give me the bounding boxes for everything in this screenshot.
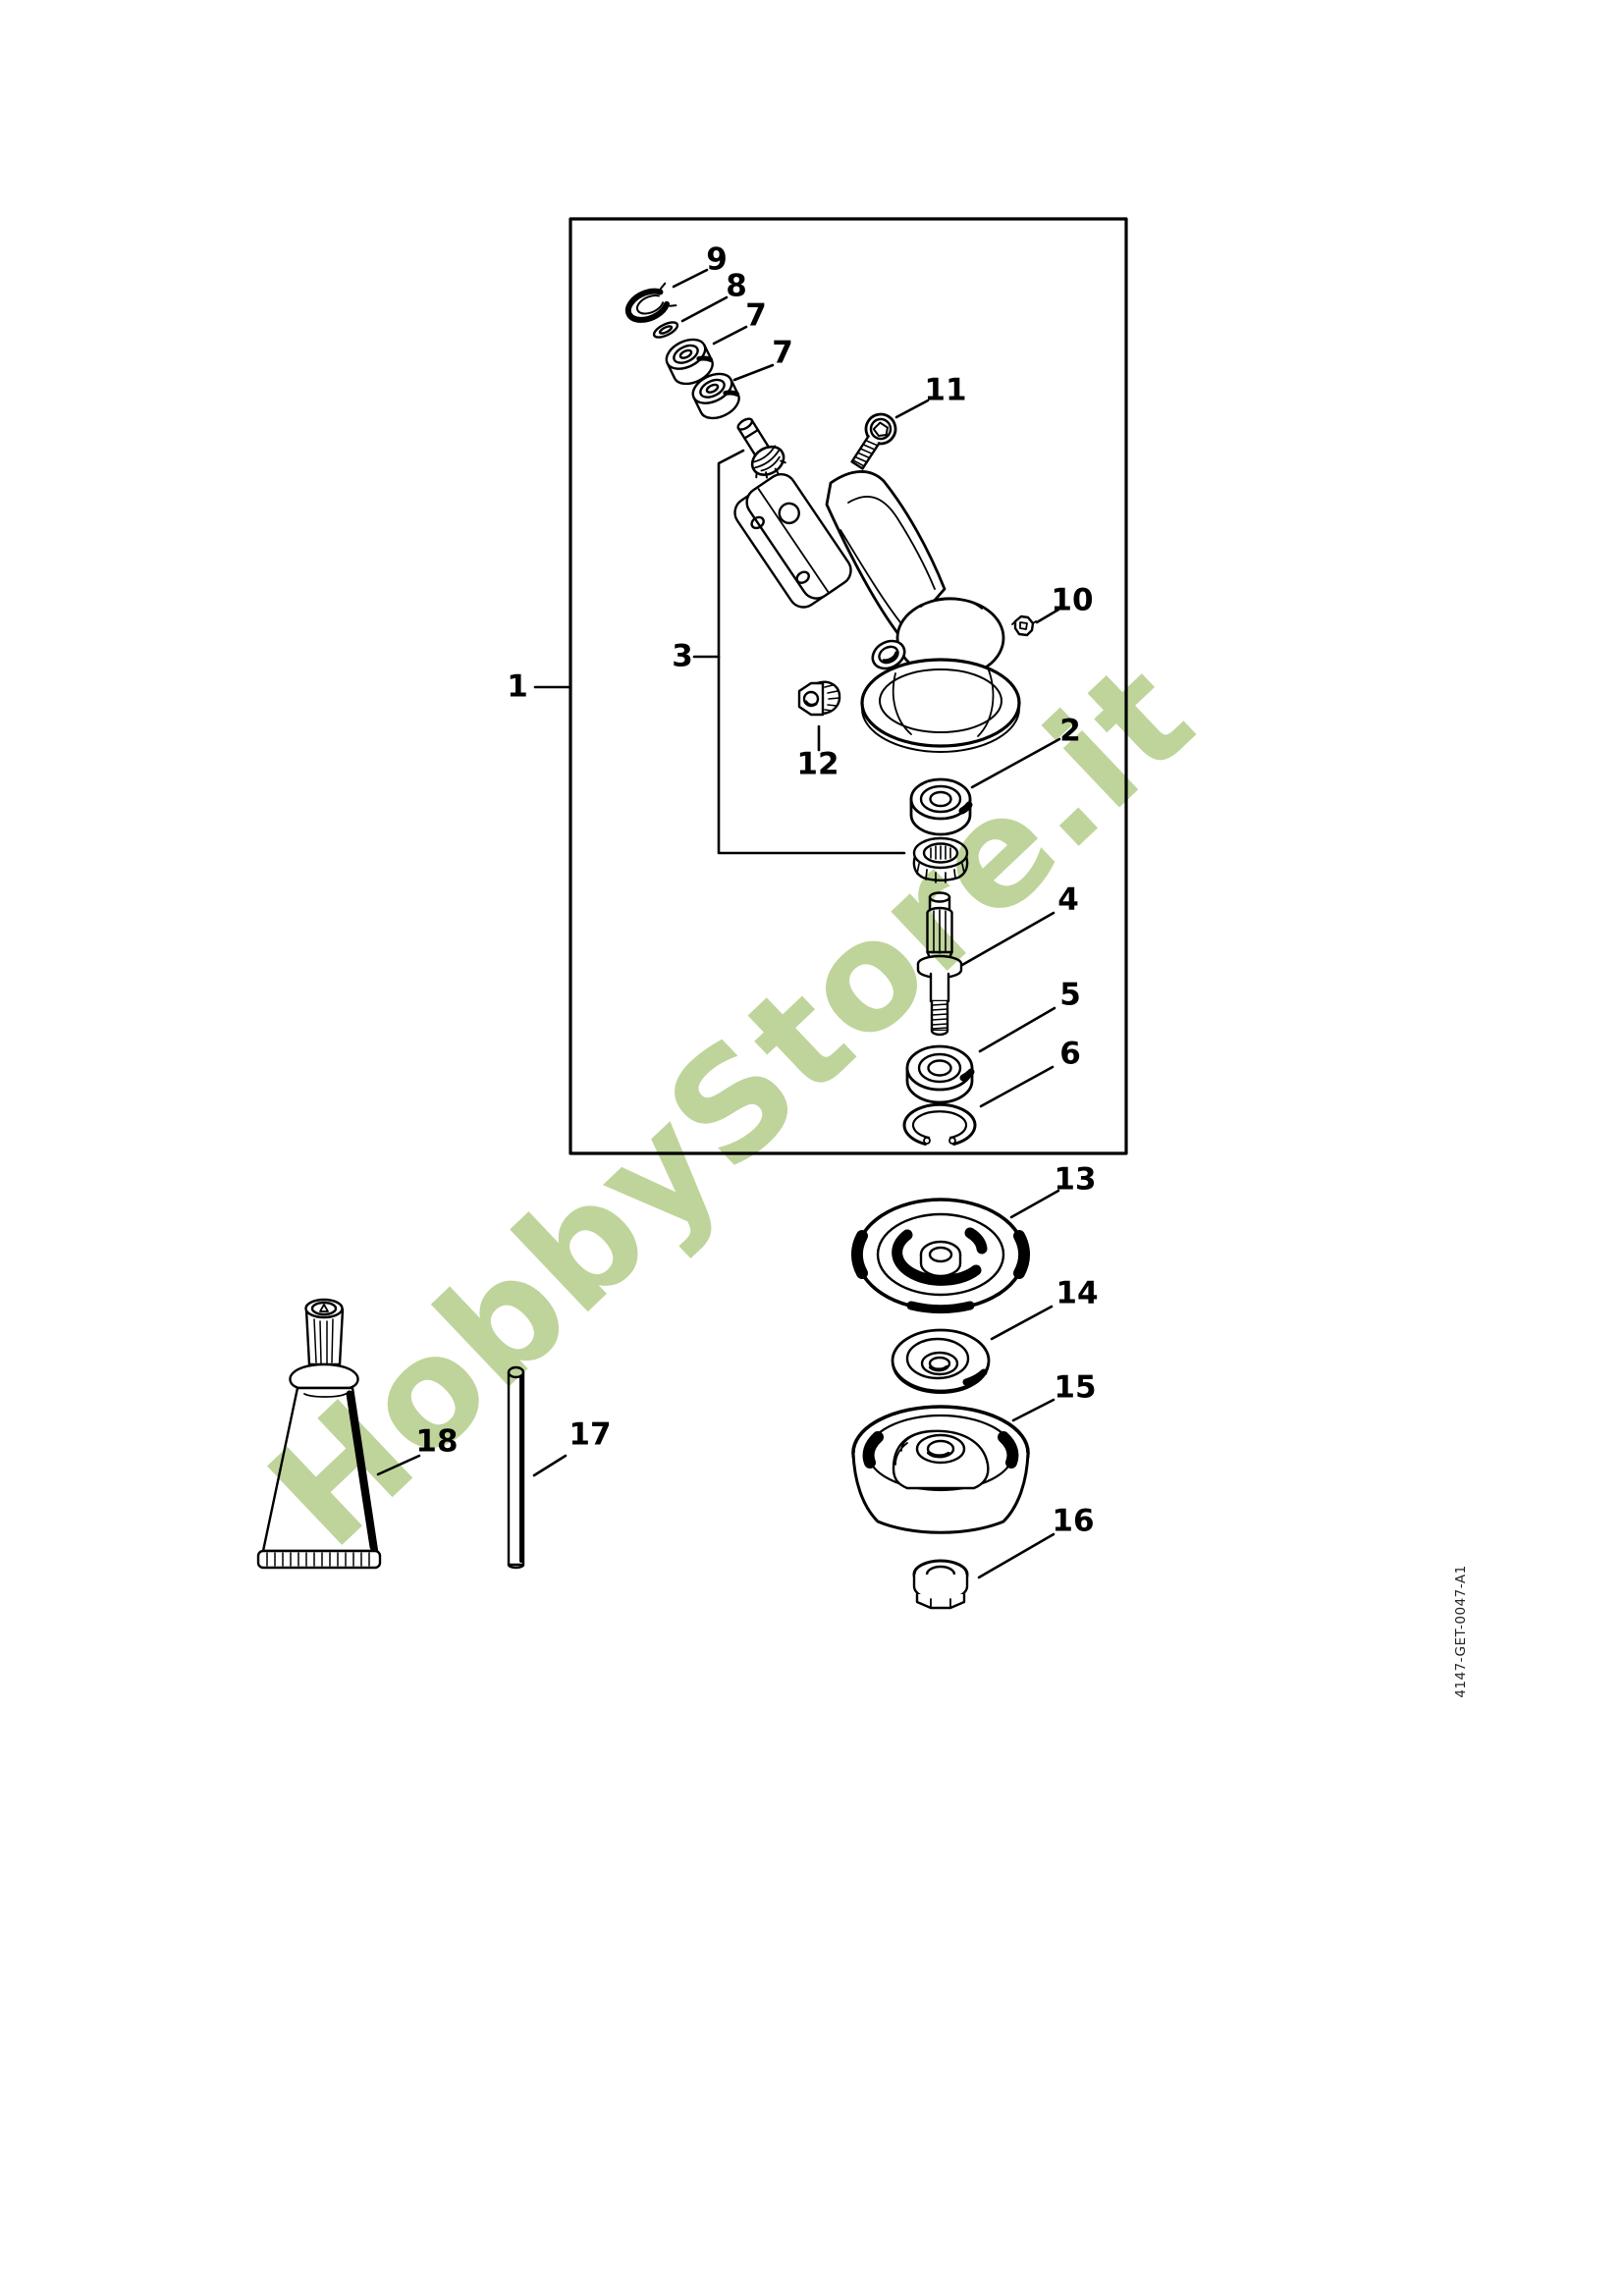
callout-14: 14 <box>1056 1279 1098 1309</box>
diagram-line-art <box>0 0 1624 2296</box>
part-screw-11 <box>844 408 900 473</box>
callout-9: 9 <box>706 245 728 276</box>
callout-16: 16 <box>1052 1507 1094 1537</box>
part-circlip-6 <box>904 1104 975 1144</box>
callout-11: 11 <box>924 376 966 406</box>
callout-10: 10 <box>1051 586 1093 616</box>
callout-7a: 7 <box>745 301 767 332</box>
part-plug-screw-12 <box>799 682 839 715</box>
callout-7b: 7 <box>772 339 793 369</box>
parts-diagram-page: 1 2 3 4 5 6 7 7 8 9 10 11 12 13 14 15 16… <box>0 0 1624 2296</box>
callout-6: 6 <box>1059 1040 1081 1070</box>
part-square-nut-10 <box>1012 616 1036 635</box>
part-rope-rotor-13 <box>857 1200 1024 1309</box>
document-code-text: 4147-GET-0047-A1 <box>1453 1565 1469 1697</box>
callout-15: 15 <box>1054 1373 1096 1404</box>
part-starter-cup-15 <box>853 1407 1028 1532</box>
callout-12: 12 <box>796 750 839 780</box>
part-collar-nut-16 <box>914 1561 967 1608</box>
part-circlip-9 <box>623 283 677 325</box>
part-washer-5 <box>907 1046 972 1102</box>
callout-1: 1 <box>507 672 528 703</box>
callout-8: 8 <box>726 272 747 302</box>
part-gear-head-housing <box>729 468 1019 752</box>
part-washer-14 <box>893 1330 989 1393</box>
part-washer-8 <box>652 319 679 340</box>
callout-5: 5 <box>1059 981 1081 1011</box>
callout-3: 3 <box>672 642 693 672</box>
callout-13: 13 <box>1054 1165 1096 1196</box>
callout-17: 17 <box>568 1420 611 1451</box>
